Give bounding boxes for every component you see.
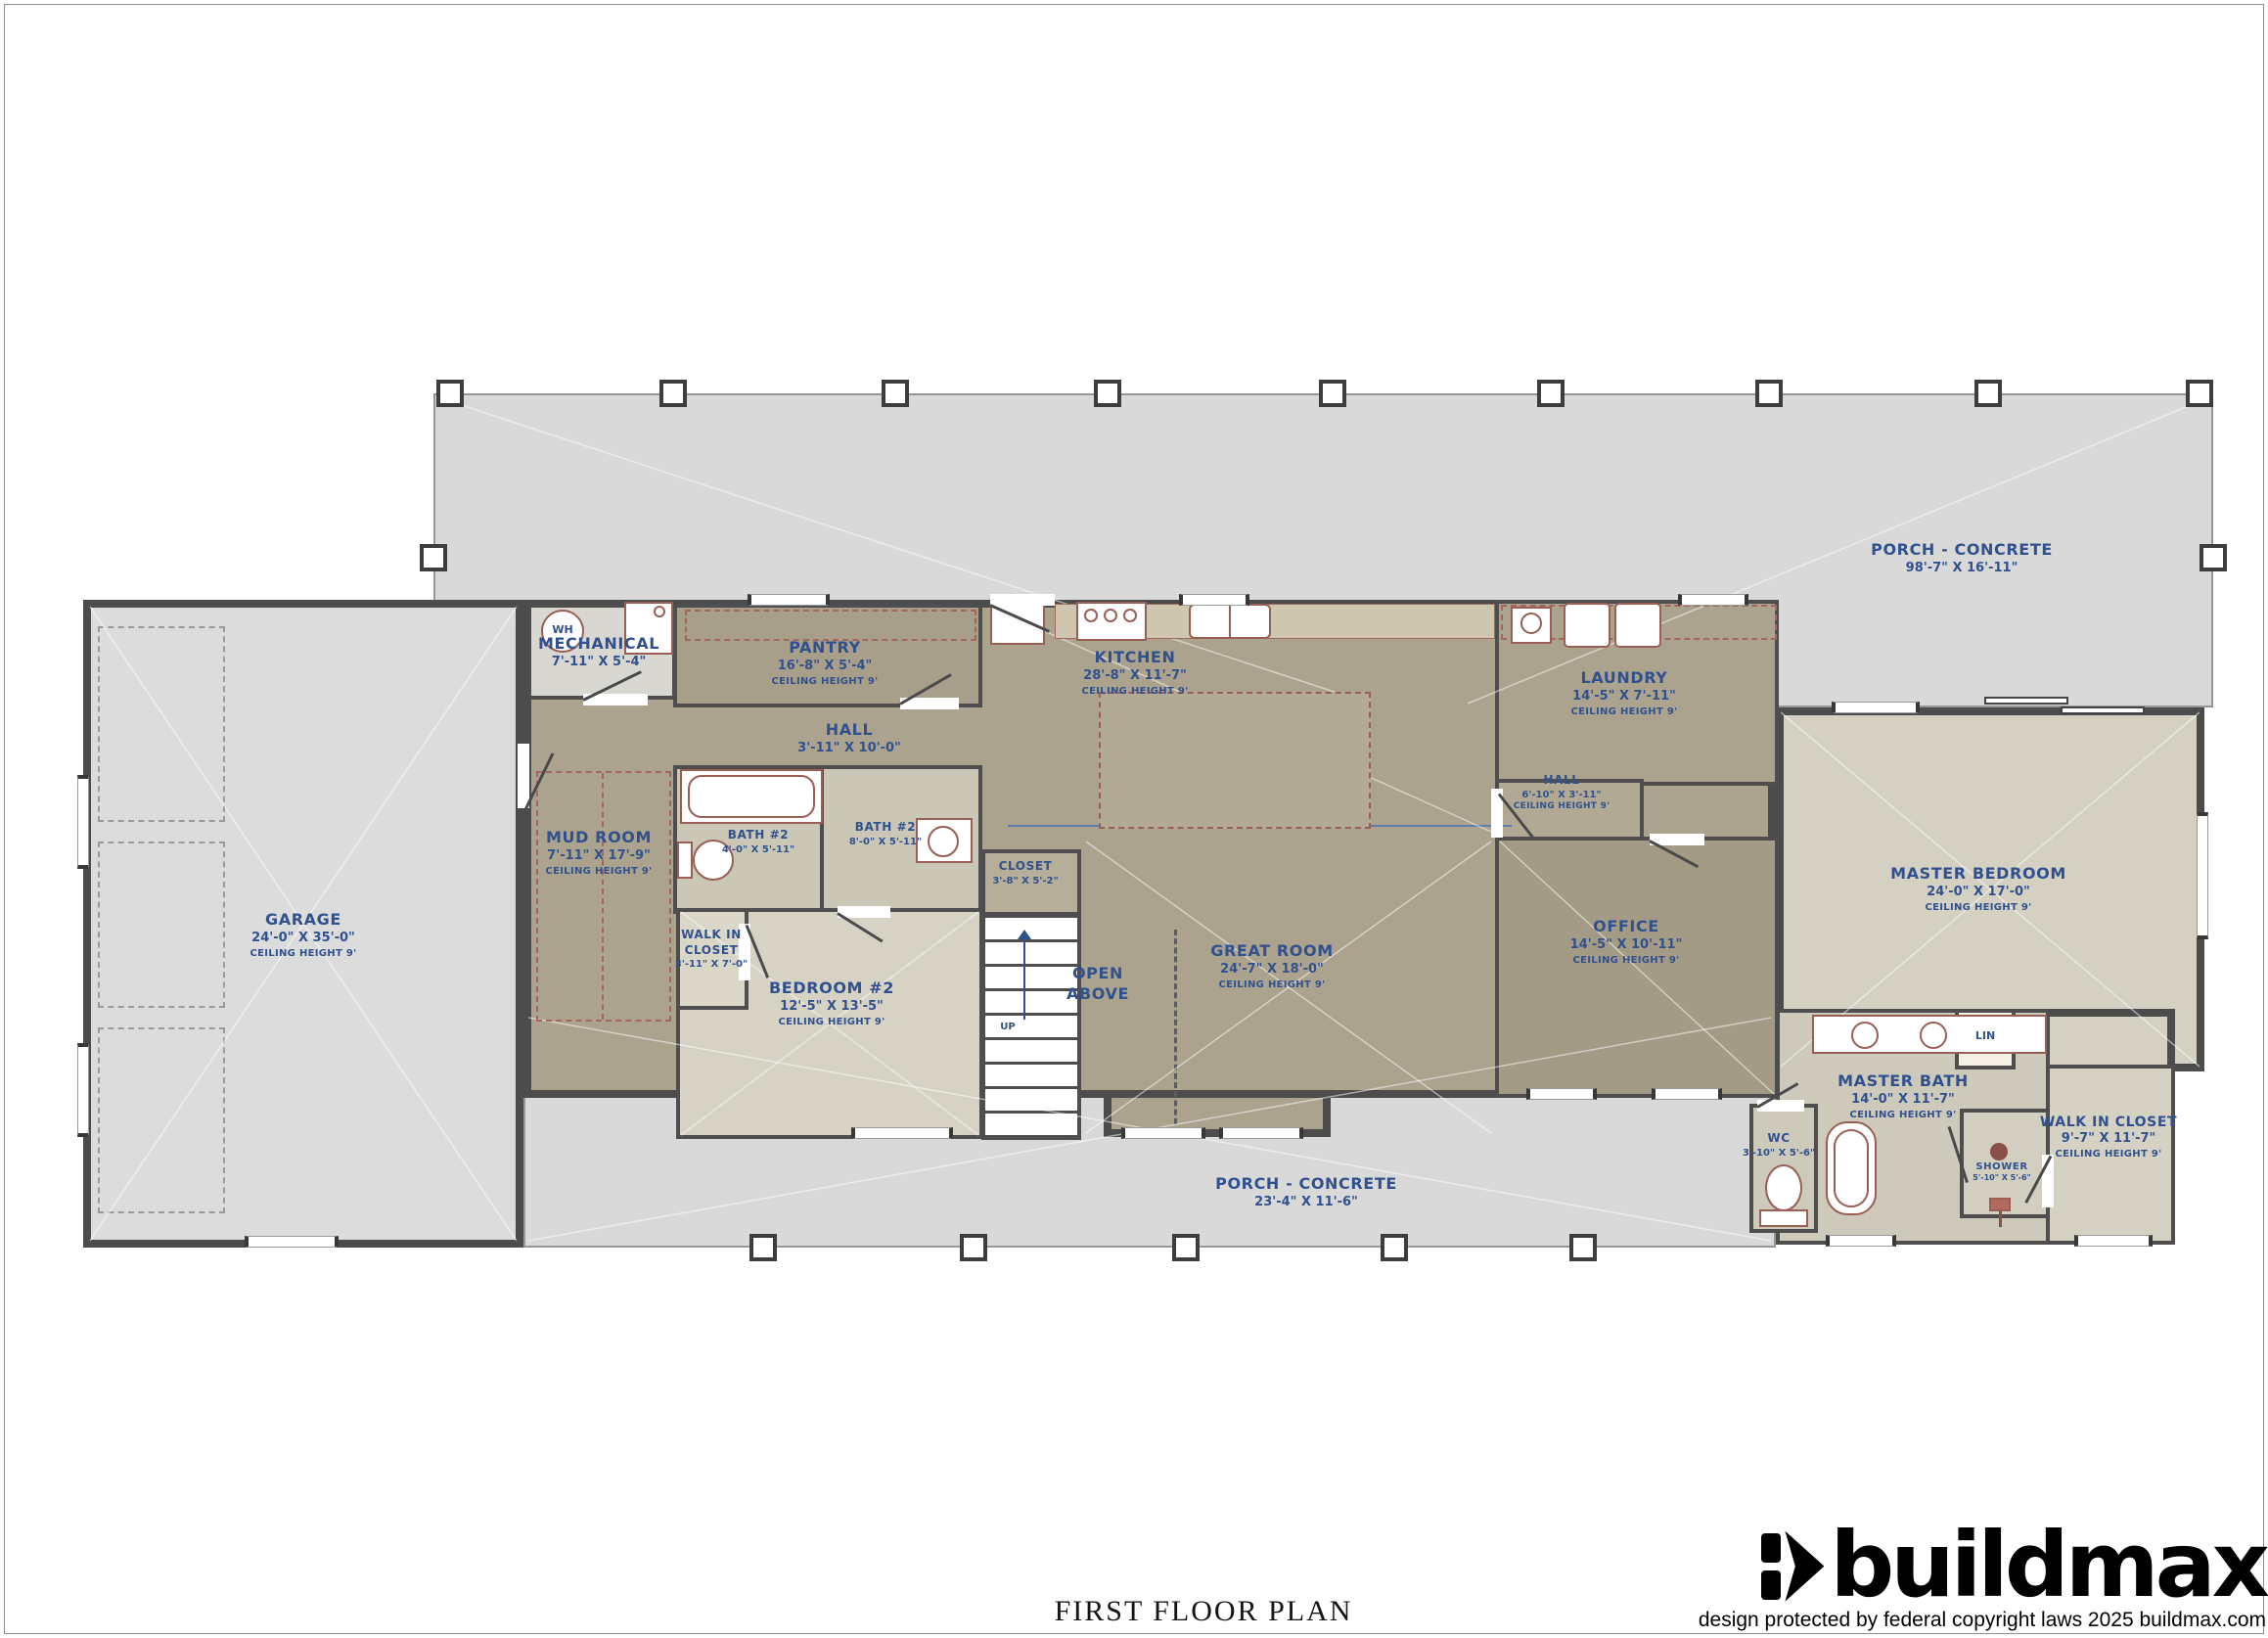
bath2b-label: BATH #28'-0" X 5'-11": [849, 820, 922, 848]
window: [77, 775, 89, 869]
walk-in-closet-right-label: WALK IN CLOSET9'-7" X 11'-7"CEILING HEIG…: [2040, 1114, 2177, 1160]
brand-wordmark: buildmax: [1830, 1525, 2266, 1607]
window: [748, 594, 830, 606]
buildmax-logo-icon: [1761, 1531, 1824, 1602]
porch-top-label: PORCH - CONCRETE98'-7" X 16'-11": [1871, 540, 2053, 577]
porch-pillar: [2186, 380, 2213, 407]
mud-room-label: MUD ROOM7'-11" X 17'-9"CEILING HEIGHT 9': [546, 828, 653, 878]
kitchen-label: KITCHEN28'-8" X 11'-7"CEILING HEIGHT 9': [1082, 648, 1189, 698]
laundry-sink-bowl: [1520, 613, 1542, 634]
porch-pillar: [1537, 380, 1565, 407]
porch-pillar: [749, 1234, 777, 1261]
garage-label: GARAGE24'-0" X 35'-0"CEILING HEIGHT 9': [250, 910, 357, 960]
mudroom-lockers: [536, 771, 671, 1022]
closet-label: CLOSET3'-8" X 5'-2": [992, 859, 1058, 887]
porch-pillar: [1755, 380, 1783, 407]
porch-pillar: [420, 544, 447, 571]
mechanical-label: MECHANICAL7'-11" X 5'-4": [538, 634, 659, 671]
sliding-door: [2061, 706, 2145, 714]
burner-icon: [1104, 609, 1117, 622]
pantry-shelves: [685, 610, 976, 641]
master-sink-right: [1920, 1022, 1947, 1049]
garage-bay-dashed: [98, 842, 225, 1008]
appliance-knob-icon: [654, 606, 665, 617]
bath2a-label: BATH #24'-0" X 5'-11": [722, 828, 794, 856]
floor-plan-page: { "title": "FIRST FLOOR PLAN", "brand": …: [0, 0, 2268, 1638]
shower-stem: [1999, 1211, 2002, 1227]
master-bath-label: MASTER BATH14'-0" X 11'-7"CEILING HEIGHT…: [1837, 1071, 1969, 1121]
door-opening: [990, 594, 1055, 606]
porch-pillar: [659, 380, 687, 407]
window: [1121, 1127, 1205, 1139]
open-above-divider: [1174, 930, 1177, 1133]
burner-icon: [1084, 609, 1098, 622]
copyright-text: design protected by federal copyright la…: [1699, 1609, 2266, 1632]
drawing-title: FIRST FLOOR PLAN: [1055, 1595, 1353, 1628]
window: [1179, 594, 1249, 606]
porch-pillar: [1569, 1234, 1597, 1261]
porch-pillar: [436, 380, 464, 407]
wc-toilet-tank: [1759, 1209, 1808, 1227]
mudroom-locker-divider: [602, 773, 604, 1020]
window: [1219, 1127, 1303, 1139]
window: [1526, 1088, 1597, 1100]
dryer: [1614, 603, 1661, 648]
window: [1652, 1088, 1722, 1100]
hall-right-label: HALL6'-10" X 3'-11"CEILING HEIGHT 9': [1514, 773, 1610, 812]
master-tub-inner: [1834, 1129, 1869, 1207]
garage-bay-dashed: [98, 626, 225, 822]
porch-pillar: [1172, 1234, 1200, 1261]
porch-pillar: [1094, 380, 1121, 407]
sliding-door: [1984, 697, 2068, 705]
porch-pillar: [1974, 380, 2002, 407]
master-bedroom-label: MASTER BEDROOM24'-0" X 17'-0"CEILING HEI…: [1890, 864, 2066, 914]
bedroom2-label: BEDROOM #212'-5" X 13'-5"CEILING HEIGHT …: [769, 978, 894, 1028]
office-label: OFFICE14'-5" X 10'-11"CEILING HEIGHT 9': [1570, 917, 1683, 967]
porch-pillar: [2200, 544, 2227, 571]
window: [245, 1236, 339, 1248]
bath2b-sink: [928, 826, 959, 857]
linen-label: LIN: [1975, 1029, 1995, 1042]
shower-label: SHOWER5'-10" X 5'-6": [1973, 1160, 2030, 1183]
office-area: [1495, 837, 1779, 1098]
stairs: [981, 914, 1081, 1140]
garage-bay-dashed: [98, 1027, 225, 1213]
pantry-label: PANTRY16'-8" X 5'-4"CEILING HEIGHT 9': [772, 638, 879, 688]
burner-icon: [1123, 609, 1137, 622]
porch-pillar: [1319, 380, 1346, 407]
window: [77, 1043, 89, 1137]
porch-pillar: [882, 380, 909, 407]
window: [1832, 702, 1920, 713]
sink-divider: [1229, 606, 1231, 637]
brand-block: buildmax design protected by federal cop…: [1699, 1525, 2266, 1632]
porch-bottom-label: PORCH - CONCRETE23'-4" X 11'-6": [1215, 1174, 1397, 1211]
wc-toilet-bowl: [1765, 1164, 1802, 1211]
window: [2197, 812, 2208, 939]
washer: [1564, 603, 1610, 648]
porch-pillar: [960, 1234, 987, 1261]
bath2-tub-inner: [688, 775, 815, 818]
window: [851, 1127, 953, 1139]
wc-label: WC3'-10" X 5'-6": [1743, 1131, 1815, 1160]
master-sink-left: [1851, 1022, 1879, 1049]
porch-pillar: [1381, 1234, 1408, 1261]
window: [1826, 1235, 1896, 1247]
stairs-up-label: UP: [1000, 1022, 1015, 1032]
shower-drain-icon: [1990, 1143, 2008, 1160]
toilet-tank: [677, 842, 693, 879]
window: [1678, 594, 1748, 606]
kitchen-island: [1099, 692, 1371, 829]
stairs-arrow-head: [1018, 930, 1031, 939]
walk-in-closet-left-label: WALK IN CLOSET3'-11" X 7'-0": [664, 928, 758, 971]
laundry-label: LAUNDRY14'-5" X 7'-11"CEILING HEIGHT 9': [1571, 668, 1678, 718]
window: [2074, 1235, 2153, 1247]
shower-head-icon: [1989, 1198, 2011, 1211]
hall-top-label: HALL3'-11" X 10'-0": [797, 720, 901, 757]
door-opening: [518, 744, 529, 808]
great-room-label: GREAT ROOM24'-7" X 18'-0"CEILING HEIGHT …: [1210, 941, 1333, 991]
open-above-label: OPEN ABOVE: [1051, 964, 1145, 1005]
stairs-arrow-line: [1023, 937, 1025, 1020]
